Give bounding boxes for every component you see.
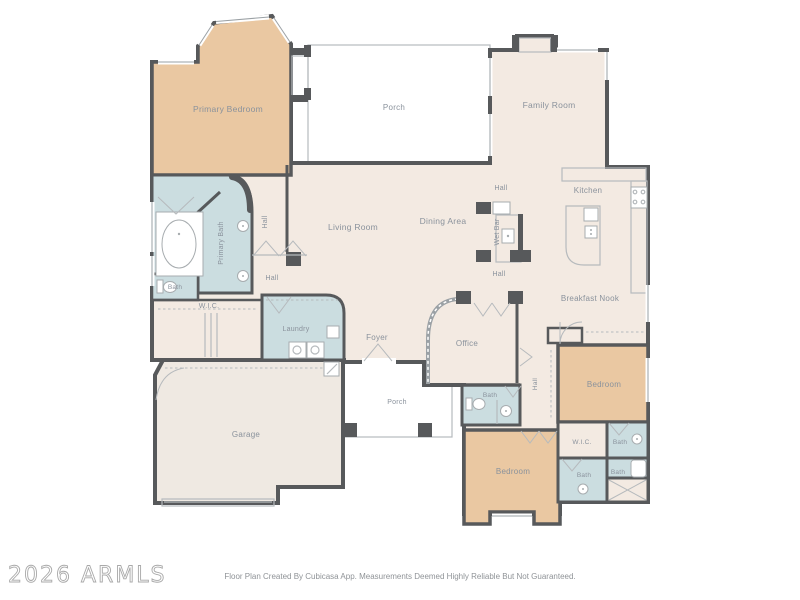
wic-right-label: W.I.C. [572, 439, 591, 446]
bedroom-bottom-label: Bedroom [496, 467, 530, 476]
bath-right-mid-label: Bath [577, 472, 592, 479]
bedroom-bottom-room [464, 430, 560, 524]
family-room-label: Family Room [523, 100, 576, 110]
breakfast-nook-label: Breakfast Nook [561, 294, 620, 303]
office-pillar-right [508, 291, 523, 304]
hall-label-primary-vert: Hall [262, 215, 269, 228]
primary-bedroom-room [152, 16, 291, 175]
hall-label-primary: Hall [265, 275, 278, 282]
bedroom-right-label: Bedroom [587, 380, 621, 389]
primary-wc-label: Bath [168, 284, 183, 291]
porch-top-label: Porch [383, 103, 405, 112]
hall-label-kitchen: Hall [494, 185, 507, 192]
living-room-label: Living Room [328, 222, 378, 232]
foyer-label: Foyer [366, 333, 388, 342]
bathtub [156, 212, 203, 276]
dining-area-label: Dining Area [420, 216, 467, 226]
bath-right-low-tub [631, 460, 646, 477]
bath-right-low-label: Bath [611, 469, 626, 476]
primary-wic-label: W.I.C. [199, 303, 220, 310]
primary-bedroom-label: Primary Bedroom [193, 104, 263, 114]
porch-pillar-right [418, 423, 432, 437]
garage-label: Garage [232, 430, 260, 439]
bath-right-top-label: Bath [613, 439, 628, 446]
porch-bottom-label: Porch [387, 399, 407, 406]
office-label: Office [456, 339, 479, 348]
armls-watermark: 2026 ARMLS [8, 563, 167, 588]
hall-label-lower: Hall [492, 271, 505, 278]
floor-plan-canvas: Primary Bedroom Porch Family Room Hall K… [0, 0, 800, 600]
bath-right-top-sink [632, 434, 642, 444]
kitchen-label: Kitchen [574, 186, 602, 195]
office-pillar-left [456, 291, 471, 304]
hall-wall-stub [286, 252, 301, 266]
primary-bath-label: Primary Bath [218, 221, 225, 264]
bath-right-mid-room [558, 458, 607, 502]
disclaimer-text: Floor Plan Created By Cubicasa App. Meas… [224, 572, 575, 581]
floor-plan-page: Primary Bedroom Porch Family Room Hall K… [0, 0, 800, 600]
hall-label-bottom-vert: Hall [532, 378, 539, 391]
porch-pillar-left [343, 423, 357, 437]
wet-bar-label: Wet Bar [494, 218, 501, 245]
bath-right-mid-sink [578, 484, 588, 494]
laundry-label: Laundry [282, 326, 309, 333]
water-heater [324, 362, 339, 376]
hall-bath-label: Bath [483, 392, 498, 399]
